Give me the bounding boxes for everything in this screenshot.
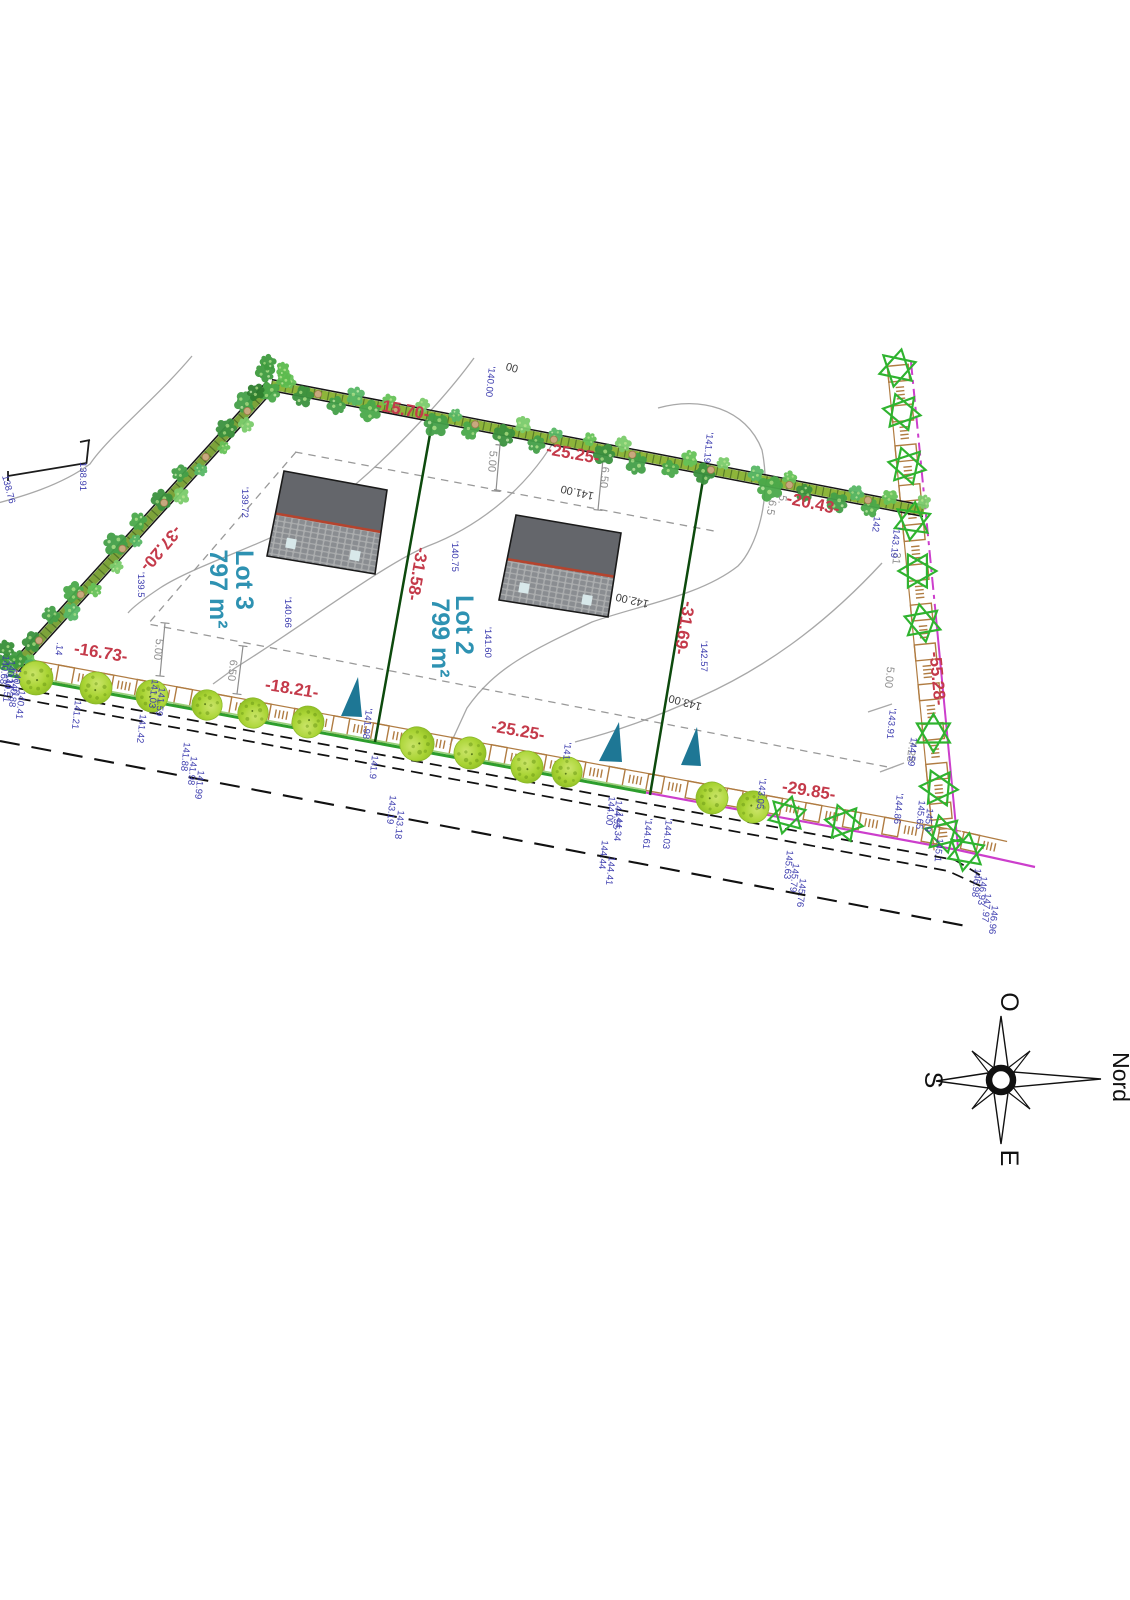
svg-text:'139.5: '139.5: [135, 572, 146, 598]
svg-text:.14: .14: [53, 642, 65, 656]
svg-text:'139.72: '139.72: [239, 487, 250, 518]
svg-text:799 m²: 799 m²: [426, 598, 454, 677]
svg-text:'142.57: '142.57: [698, 641, 709, 672]
svg-text:'140.66: '140.66: [282, 597, 293, 628]
svg-text:5.00: 5.00: [151, 638, 165, 661]
svg-text:Lot 3: Lot 3: [230, 550, 258, 610]
svg-text:'140.75: '140.75: [449, 541, 460, 572]
svg-text:797 m²: 797 m²: [204, 549, 232, 628]
svg-text:6.50: 6.50: [597, 466, 611, 488]
svg-text:'141.60: '141.60: [482, 627, 493, 658]
svg-text:6.50: 6.50: [225, 659, 239, 682]
svg-text:O: O: [995, 992, 1023, 1011]
svg-text:Nord: Nord: [1108, 1052, 1130, 1102]
svg-text:5.00: 5.00: [485, 450, 499, 472]
svg-text:E: E: [995, 1150, 1023, 1167]
svg-text:5.00: 5.00: [882, 666, 896, 689]
svg-text:'141: '141: [560, 742, 573, 761]
svg-text:142: 142: [869, 516, 882, 533]
svg-text:S: S: [919, 1072, 947, 1089]
svg-text:138.91: 138.91: [77, 462, 88, 491]
